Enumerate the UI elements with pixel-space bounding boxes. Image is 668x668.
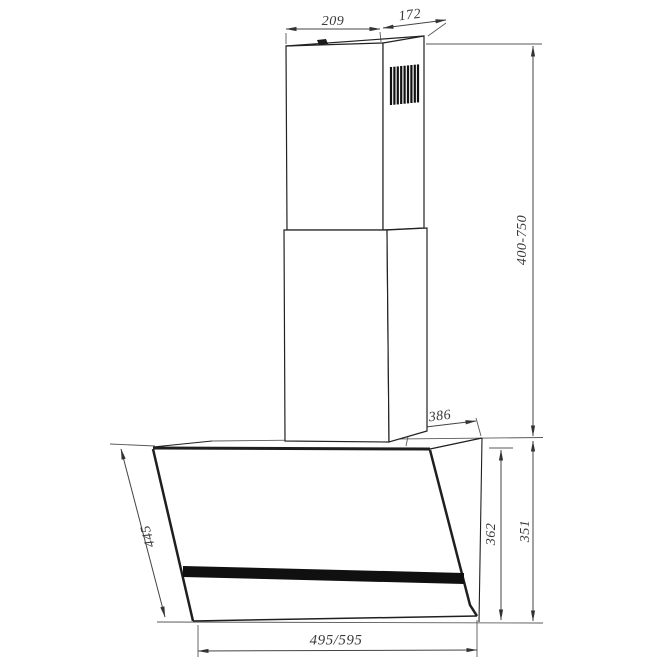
- dim-line-495-595: [198, 650, 477, 651]
- dim-label-rear-height: 351: [518, 520, 534, 543]
- dim-label-chimney-top-depth: 172: [398, 7, 422, 26]
- chimney-top-outlet: [317, 39, 328, 45]
- vent-grille-icon: [391, 64, 418, 105]
- glass-right-edge: [430, 450, 477, 616]
- filter-strip: [183, 566, 464, 584]
- hood-top-front-edge: [153, 448, 430, 449]
- hood-dimension-diagram: 209 172 400-750 386 445 362 351 495/595: [0, 0, 668, 668]
- chimney-upper-front: [286, 43, 383, 230]
- chimney-lower-front: [284, 230, 389, 442]
- hood-top-right-edge: [430, 438, 482, 449]
- dim-label-front-height: 362: [484, 523, 500, 546]
- glass-bottom-edge: [193, 616, 477, 621]
- dim-label-chimney-height-range: 400-750: [515, 215, 531, 265]
- hood-body: [153, 438, 482, 622]
- chimney-lower-side: [387, 228, 427, 442]
- hood-top-left-edge: [153, 441, 212, 447]
- hood-rear-right-edge: [479, 438, 482, 622]
- dim-label-hood-top-depth: 386: [428, 408, 452, 427]
- dim-label-hood-width: 495/595: [310, 633, 363, 650]
- dim-label-chimney-top-width: 209: [322, 14, 345, 30]
- hood-line-art: [0, 0, 668, 668]
